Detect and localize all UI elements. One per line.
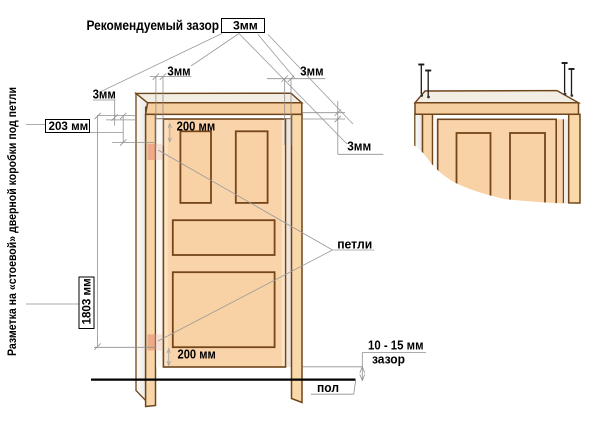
svg-text:петли: петли: [337, 237, 372, 252]
svg-text:200 мм: 200 мм: [177, 120, 216, 134]
svg-text:10 - 15 мм: 10 - 15 мм: [368, 339, 424, 353]
svg-text:203 мм: 203 мм: [49, 120, 89, 133]
svg-text:3мм: 3мм: [233, 19, 258, 33]
svg-text:Разметка на «стоевой» дверной: Разметка на «стоевой» дверной коробки по…: [6, 87, 19, 356]
svg-text:200 мм: 200 мм: [178, 348, 216, 362]
svg-text:Рекомендуемый зазор: Рекомендуемый зазор: [87, 18, 220, 33]
svg-text:зазор: зазор: [372, 352, 405, 367]
svg-text:3мм: 3мм: [347, 140, 371, 154]
svg-text:3мм: 3мм: [167, 65, 190, 79]
svg-text:3мм: 3мм: [300, 65, 323, 79]
svg-text:1803 мм: 1803 мм: [81, 278, 94, 324]
svg-text:пол: пол: [317, 380, 339, 395]
svg-text:3мм: 3мм: [93, 88, 116, 102]
